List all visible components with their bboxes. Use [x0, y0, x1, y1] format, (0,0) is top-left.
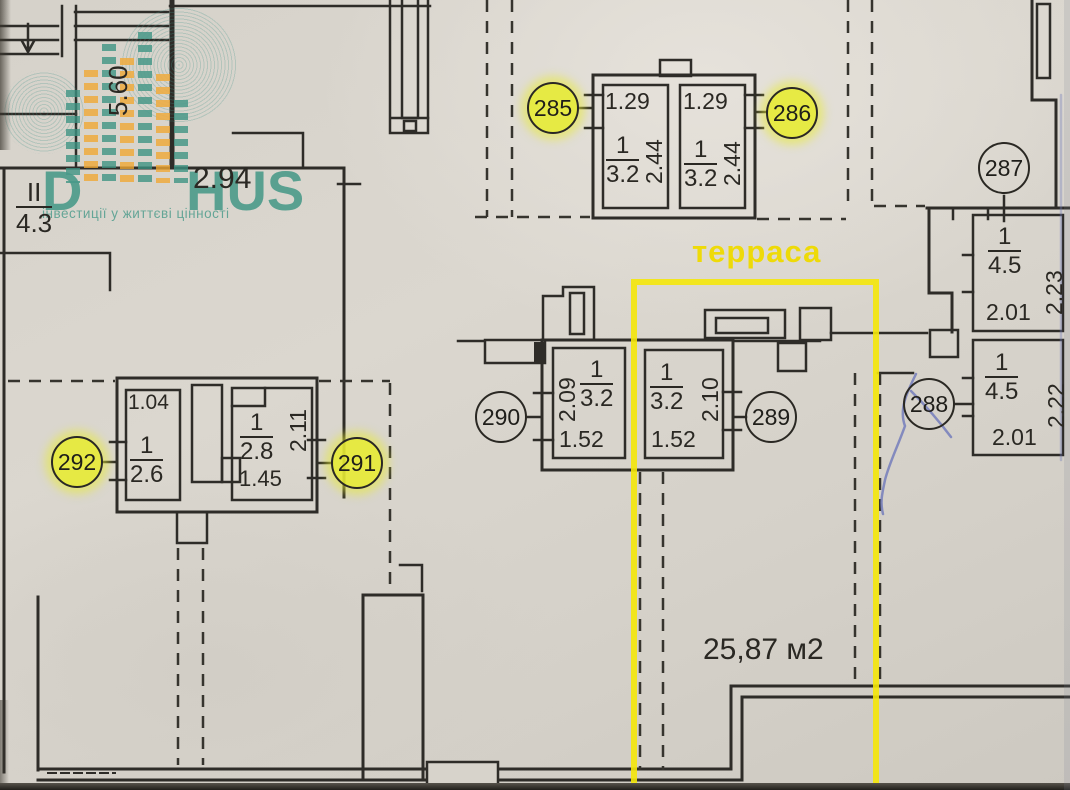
- terrace-label: терраса: [692, 234, 821, 270]
- dim-291-width: 1.45: [239, 466, 282, 492]
- room-290-area: 3.2: [580, 385, 613, 412]
- dim-289-width: 1.52: [651, 426, 696, 453]
- stair-level-area-label: II 4.3: [16, 178, 52, 237]
- dim-290-width: 1.52: [559, 426, 604, 453]
- dim-285-width: 1.29: [605, 88, 650, 115]
- unit-number-287: 287: [985, 155, 1023, 182]
- unit-bubble-286: 286: [766, 87, 818, 139]
- room-290-number: 1: [580, 357, 613, 385]
- dim-285-height: 2.44: [641, 112, 668, 184]
- unit-bubble-290: 290: [475, 391, 527, 443]
- room-288-number-area: 1 4.5: [985, 350, 1018, 405]
- room-286-number-area: 1 3.2: [684, 137, 717, 192]
- dim-stair-width: 2.94: [193, 162, 251, 196]
- room-285-number-area: 1 3.2: [606, 133, 639, 188]
- room-289-number: 1: [650, 360, 683, 388]
- dim-292-width: 1.04: [128, 391, 169, 415]
- dim-289-height: 2.10: [697, 352, 724, 422]
- floorplan-photo: терраса 25,87 м2 D HUS інвестиції у житт…: [0, 0, 1070, 790]
- unit-number-289: 289: [752, 404, 790, 431]
- room-288-area: 4.5: [985, 378, 1018, 405]
- room-289-number-area: 1 3.2: [650, 360, 683, 415]
- unit-number-291: 291: [338, 450, 376, 477]
- unit-number-285: 285: [534, 95, 572, 122]
- room-285-number: 1: [606, 133, 639, 161]
- room-292-number-area: 1 2.6: [130, 433, 163, 488]
- room-287-number-area: 1 4.5: [988, 224, 1021, 279]
- unit-bubble-289: 289: [745, 391, 797, 443]
- unit-number-292: 292: [58, 449, 96, 476]
- room-285-area: 3.2: [606, 161, 639, 188]
- terrace-area-value: 25,87 м2: [703, 633, 824, 667]
- room-291-area: 2.8: [240, 438, 273, 465]
- dim-287-height: 2.23: [1041, 237, 1068, 315]
- unit-bubble-291: 291: [331, 437, 383, 489]
- unit-bubble-292: 292: [51, 436, 103, 488]
- dim-stair-depth: 5.60: [103, 40, 134, 116]
- stair-level: II: [16, 178, 52, 208]
- unit-number-290: 290: [482, 404, 520, 431]
- dim-286-height: 2.44: [719, 114, 746, 186]
- room-286-area: 3.2: [684, 165, 717, 192]
- dim-286-width: 1.29: [683, 88, 728, 115]
- room-287-area: 4.5: [988, 252, 1021, 279]
- room-287-number: 1: [988, 224, 1021, 252]
- room-292-number: 1: [130, 433, 163, 461]
- room-291-number-area: 1 2.8: [240, 410, 273, 465]
- dim-287-width: 2.01: [986, 299, 1031, 326]
- unit-number-286: 286: [773, 100, 811, 127]
- unit-bubble-288: 288: [903, 378, 955, 430]
- room-289-area: 3.2: [650, 388, 683, 415]
- dim-290-height: 2.09: [554, 352, 581, 422]
- dim-288-height: 2.22: [1043, 358, 1070, 428]
- room-290-number-area: 1 3.2: [580, 357, 613, 412]
- room-291-number: 1: [240, 410, 273, 438]
- room-288-number: 1: [985, 350, 1018, 378]
- unit-number-288: 288: [910, 391, 948, 418]
- dim-288-width: 2.01: [992, 424, 1037, 451]
- unit-bubble-287: 287: [978, 142, 1030, 194]
- room-292-area: 2.6: [130, 461, 163, 488]
- pen-marks: [882, 95, 1061, 514]
- unit-bubble-285: 285: [527, 82, 579, 134]
- dim-291-height: 2.11: [285, 392, 312, 452]
- brand-tagline: інвестиції у життєві цінності: [42, 206, 230, 221]
- room-286-number: 1: [684, 137, 717, 165]
- terrace-highlight-outline: [631, 279, 879, 790]
- stair-area: 4.3: [16, 208, 52, 237]
